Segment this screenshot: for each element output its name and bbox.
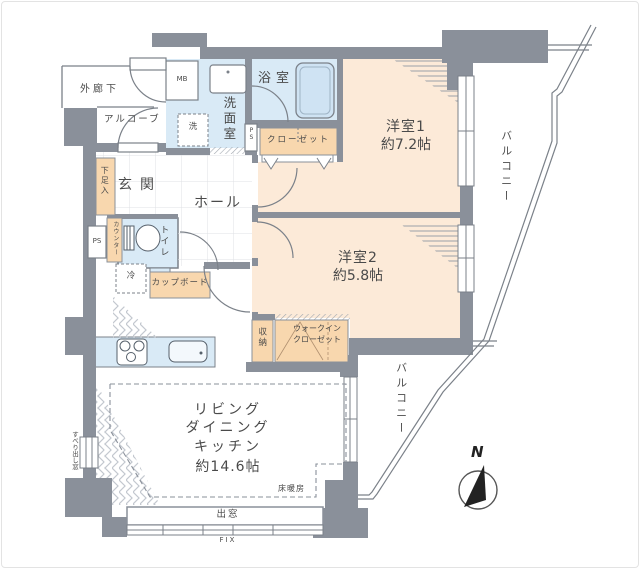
ldk-door-arc <box>204 266 250 312</box>
label-entrance: 玄関 <box>112 177 168 193</box>
mb-door-arc <box>130 66 166 102</box>
casement-window <box>80 437 98 468</box>
label-cupboard: カップボード <box>150 279 210 289</box>
label-north: N <box>471 444 484 461</box>
label-bath: 浴室 <box>258 72 294 87</box>
label-ldk-line3: キッチン <box>158 439 298 455</box>
label-ldk-size: 約14.6帖 <box>158 459 298 475</box>
label-ldk-line1: リビング <box>158 401 298 420</box>
label-wic-line1: ウォークイン <box>288 324 346 333</box>
label-corridor: 外廊下 <box>80 84 119 96</box>
bedroom2-window <box>458 225 474 292</box>
label-balcony-bottom: バルコニー <box>394 362 407 437</box>
label-counter: カウンター <box>111 221 118 256</box>
label-bedroom1-size: 約7.2帖 <box>360 137 452 153</box>
label-meter-box: MB <box>166 75 198 83</box>
toilet-fixture <box>124 225 160 251</box>
label-hall: ホール <box>190 195 246 211</box>
label-washer: 洗 <box>178 123 208 133</box>
bedroom1-window <box>458 76 474 186</box>
label-fridge: 冷 <box>116 272 146 282</box>
label-bedroom2-name: 洋室2 <box>312 250 404 266</box>
label-alcove: アルコーブ <box>104 115 161 126</box>
label-ldk-line2: ダイニング <box>158 420 298 436</box>
label-floor-heating: 床暖房 <box>278 484 305 493</box>
label-washroom: 洗面室 <box>221 96 235 143</box>
label-ps-left: PS <box>88 237 106 245</box>
label-casement-window: すべり出し窓 <box>70 431 77 470</box>
label-shunou: 収納 <box>256 327 266 348</box>
bathtub <box>296 63 334 118</box>
label-fix-window: FIX <box>204 536 252 544</box>
label-wic-line2: クローゼット <box>288 335 346 344</box>
mb-door-leaf <box>130 58 166 70</box>
label-bedroom2-size: 約5.8帖 <box>312 268 404 284</box>
label-bay-window: 出窓 <box>195 510 261 521</box>
label-balcony-right: バルコニー <box>499 130 512 205</box>
label-toilet: トイレ <box>158 225 168 258</box>
label-shoe-box: 下足入 <box>100 166 109 196</box>
entry-door-leaf <box>118 143 158 152</box>
floor-plan-image: 外廊下 アルコーブ 玄関 ホール 下足入 MB 洗面室 洗 浴室 PS PS ク… <box>0 0 640 569</box>
label-closet: クローゼット <box>262 136 335 146</box>
stove <box>117 339 147 365</box>
washbasin <box>210 65 246 93</box>
compass <box>459 465 497 509</box>
label-ps-right: PS <box>247 127 254 141</box>
label-bedroom1-name: 洋室1 <box>360 119 452 135</box>
kitchen-sink <box>169 341 207 362</box>
